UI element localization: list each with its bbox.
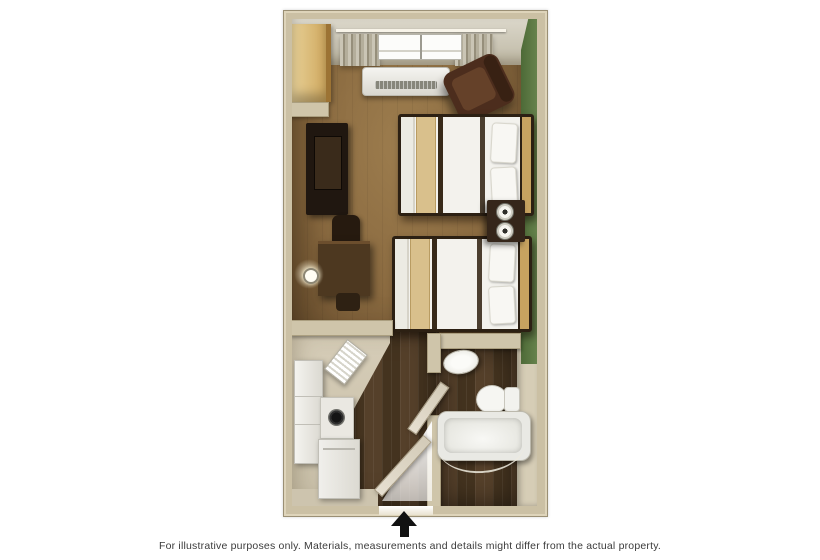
- pillow: [488, 285, 516, 324]
- entrance-arrow-head: [391, 511, 417, 526]
- entrance-arrow-icon: [391, 511, 417, 537]
- floor-plan-interior: [292, 19, 537, 506]
- stove: [320, 397, 354, 439]
- disclaimer-text: For illustrative purposes only. Material…: [0, 540, 820, 552]
- nightstand: [487, 200, 525, 242]
- headboard: [518, 239, 529, 329]
- bed-frame-divider: [477, 239, 482, 329]
- entrance-arrow-stem: [400, 526, 409, 537]
- closet-wall-stub: [292, 102, 329, 117]
- bathroom-top-wall: [439, 333, 521, 349]
- wall-sconce: [303, 268, 319, 284]
- closet: [292, 24, 331, 102]
- bed-frame-divider: [480, 117, 485, 213]
- bed-blanket-fold: [401, 117, 415, 213]
- pillow: [490, 122, 518, 164]
- bed-blanket-stripe: [416, 117, 436, 213]
- headboard: [520, 117, 531, 213]
- tv-console: [306, 123, 348, 215]
- bed-blanket-fold: [395, 239, 409, 329]
- window: [378, 34, 462, 60]
- ac-vent-grille: [375, 81, 437, 89]
- desk-stool: [336, 293, 360, 311]
- bathroom-divider-wall-upper: [427, 333, 441, 373]
- table-lamp: [496, 222, 514, 240]
- bed-frame-divider: [438, 117, 443, 213]
- toilet-tank: [504, 387, 520, 412]
- dishwasher: [318, 439, 360, 499]
- bed-frame-divider: [432, 239, 437, 329]
- curtain-rod: [336, 29, 506, 32]
- double-bed-2: [392, 236, 532, 332]
- floor-plan: [283, 10, 548, 517]
- tv-screen: [314, 136, 342, 190]
- ac-heater-unit: [362, 67, 450, 96]
- pillow: [488, 244, 516, 283]
- bed-blanket-stripe: [410, 239, 430, 329]
- curtain-left: [340, 34, 380, 66]
- desk: [318, 241, 370, 296]
- floor-plan-image: For illustrative purposes only. Material…: [0, 0, 820, 560]
- stove-burner: [328, 409, 345, 426]
- kitchen-half-wall: [292, 320, 393, 336]
- table-lamp: [496, 203, 514, 221]
